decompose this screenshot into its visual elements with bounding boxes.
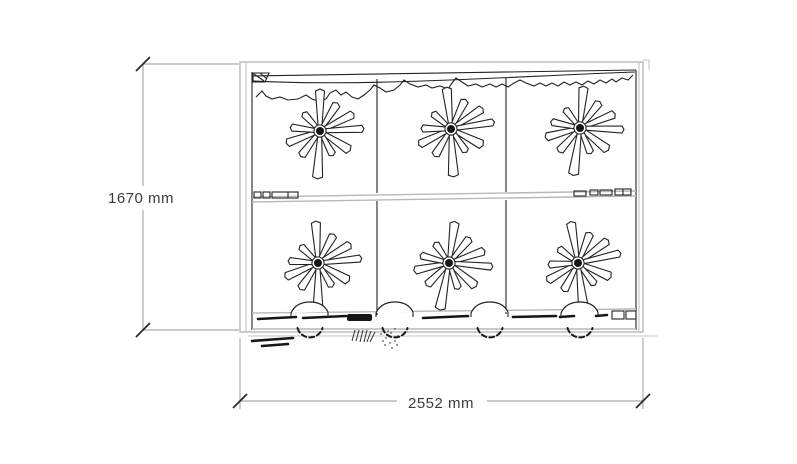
fan-rosette (419, 87, 495, 177)
fan-rosette (547, 222, 621, 311)
height-dimension-label: 1670 mm (108, 190, 174, 207)
width-dimension-label: 2552 mm (408, 395, 474, 412)
base-rail (252, 309, 636, 349)
width-dimension: 2552 mm (233, 338, 650, 413)
column-dividers (377, 78, 506, 315)
fan-rosette (545, 86, 624, 175)
shelf-divider (252, 189, 636, 202)
ink-blob (347, 314, 372, 321)
technical-drawing: 1670 mm 2552 mm (0, 0, 797, 464)
height-dimension: 1670 mm (103, 57, 239, 337)
drawing-canvas: 1670 mm 2552 mm (0, 0, 797, 464)
fan-rosette (286, 89, 364, 179)
fan-rosette (414, 221, 493, 310)
fan-rosette (285, 221, 362, 311)
